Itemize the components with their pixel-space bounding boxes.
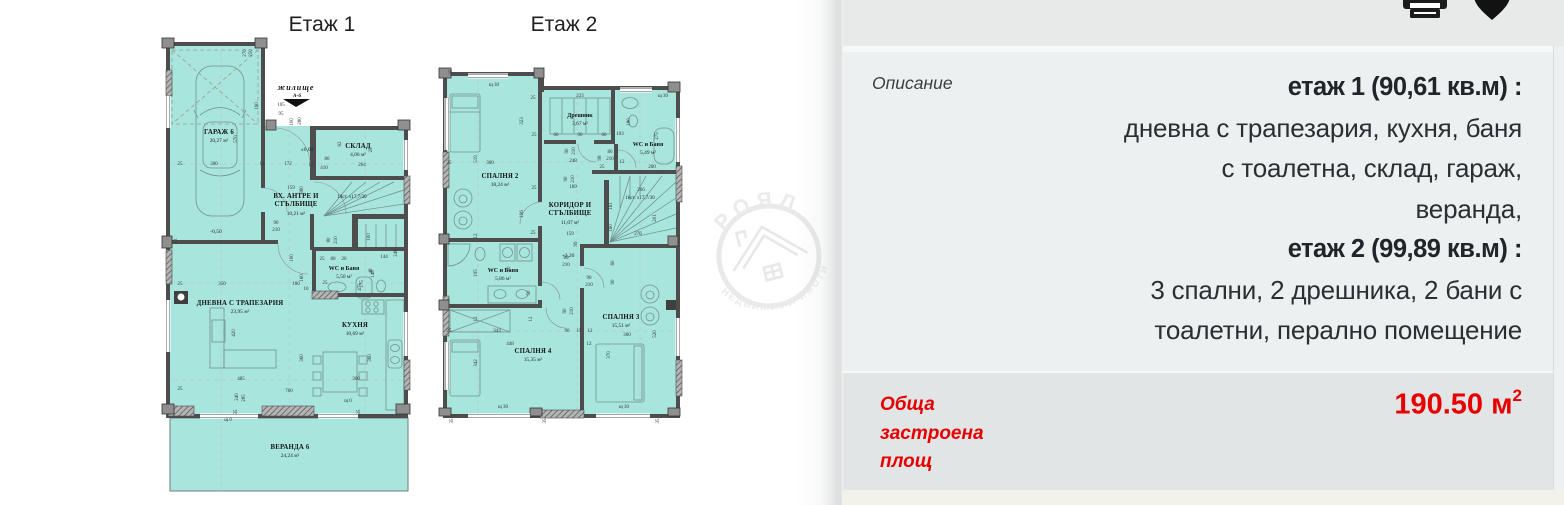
room-label: СПАЛНЯ 2 [481, 173, 518, 180]
note-label: жилище [278, 83, 315, 92]
room-label: СПАЛНЯ 3 [602, 314, 639, 321]
dim-label: 105 [277, 103, 285, 108]
dim-label: 448 [506, 342, 514, 347]
dim-label: 12 [174, 238, 179, 244]
dim-label: 25 [447, 329, 453, 334]
dim-label: 80 [331, 257, 337, 262]
note-label: А-6 [292, 93, 302, 99]
dim-label: 35 [450, 418, 455, 424]
dim-label: 25 [447, 161, 453, 166]
room-label: СПАЛНЯ 4 [514, 348, 551, 355]
dim-label: 323 [520, 117, 525, 125]
dim-label: 380 [300, 186, 305, 194]
dim-label: 240 [235, 393, 240, 401]
dim-label: 519 [474, 155, 479, 163]
dim-label: 210 [334, 236, 339, 244]
dim-label: 10 [304, 287, 310, 292]
room-label: СТЪЛБИЩЕ [274, 201, 317, 208]
dim-label: 12 [309, 163, 315, 168]
dim-label: 25 [178, 387, 184, 392]
dim-label: 410 [320, 166, 328, 171]
room-label: ГАРАЖ 6 [204, 129, 234, 136]
dim-label: 300 [623, 333, 631, 338]
dim-label: 196 [520, 210, 525, 218]
description-line: с тоалетна, склад, гараж, [1124, 148, 1522, 189]
room-area: 15,51 м² [612, 323, 631, 329]
description-line: 3 спални, 2 дрешника, 2 бани с [1124, 270, 1522, 311]
dim-label: 66 [602, 133, 608, 138]
note-label: -0,50 [210, 229, 222, 235]
note-label: щ 30 [658, 94, 669, 99]
room-area: 10,69 м² [346, 331, 365, 337]
dim-label: 144 [380, 255, 388, 260]
dim-label: 248 [394, 249, 399, 257]
floor2-title: Етаж 2 [531, 13, 598, 37]
room-label: Дрешник [567, 113, 593, 119]
total-area-label-line: площ [880, 448, 984, 477]
note-label: 18ст. x17,7/30 [625, 196, 655, 201]
dim-label: 15 [577, 329, 583, 334]
floorplans-area: Етаж 1 Етаж 2 ГАРАЖ 620,27 м²СКЛАД4,06 м… [0, 0, 843, 505]
dim-label: 100 [290, 118, 295, 126]
dim-label: 12 [588, 329, 594, 334]
room-label: ВХ. АНТРЕ И [273, 193, 319, 200]
dim-label: 25 [600, 165, 606, 170]
dim-label: 12 [587, 342, 593, 347]
description-line: дневна с трапезария, кухня, баня [1124, 108, 1522, 149]
room-label: ВЕРАНДА 6 [270, 444, 309, 451]
dim-label: 210 [606, 157, 614, 162]
description-line: тоалетни, перално помещение [1124, 310, 1522, 351]
dim-label: 210 [272, 228, 280, 233]
note-label: щ 0 [344, 399, 352, 404]
listing-info-panel: Описание етаж 1 (90,61 кв.м) :дневна с т… [843, 0, 1564, 505]
dim-label: 35 [656, 418, 661, 424]
dim-label: 35 [543, 418, 548, 424]
room-area: 5,49 м² [640, 150, 656, 156]
dim-label: 25 [320, 257, 326, 262]
dim-label: 275 [655, 132, 660, 140]
description-line: етаж 2 (99,89 кв.м) : [1124, 229, 1522, 270]
dim-label: 25 [323, 281, 329, 286]
dim-label: 285 [242, 394, 247, 402]
dim-label: 475 [358, 283, 363, 291]
dim-label: 360 [368, 354, 373, 362]
room-area: 20,27 м² [210, 138, 229, 144]
dim-label: 12 [474, 316, 479, 322]
dim-label: 35 [449, 69, 454, 75]
dim-label: 210 [570, 307, 575, 315]
next-section-edge [843, 490, 1564, 505]
dim-label: 12 [474, 233, 479, 239]
dim-label: 270 [243, 49, 248, 57]
room-area: 3,67 м² [572, 121, 588, 127]
room-area: 15,35 м² [524, 357, 543, 363]
dim-label: 420 [232, 329, 237, 337]
dim-label: 90 [564, 176, 569, 182]
printer-icon [1403, 0, 1447, 26]
dim-label: 80 [507, 266, 512, 272]
description-label: Описание [872, 73, 953, 94]
dim-label: 360 [300, 354, 305, 362]
dim-label: 103 [616, 132, 624, 137]
note-label: щ 30 [498, 405, 509, 410]
room-label: ДНЕВНА С ТРАПЕЗАРИЯ [197, 300, 284, 307]
dim-label: 159 [287, 186, 295, 191]
total-area-card: Общазастроенаплощ 190.50 м2 [843, 373, 1553, 490]
dim-label: 520 [653, 330, 658, 338]
room-label: WC и Баня [329, 266, 360, 272]
dim-label: 90 [563, 308, 568, 314]
dim-label: 223 [576, 94, 584, 99]
room-area: 24,24 м² [281, 453, 300, 459]
dim-label: 25 [532, 186, 538, 191]
dim-label: 26 [342, 257, 348, 262]
dim-label: 180 [627, 118, 632, 126]
dim-label: 66 [554, 133, 560, 138]
dim-label: 80 [327, 237, 332, 243]
dim-label: 159 [566, 232, 574, 237]
note-label: щ 30 [619, 405, 630, 410]
dim-label: 50 [527, 290, 532, 296]
room-area: 10,21 м² [287, 211, 306, 217]
dim-label: 35 [357, 409, 362, 415]
house-icon [725, 218, 812, 288]
panel-right-margin [1553, 46, 1564, 490]
dim-label: 98 [598, 155, 603, 161]
watermark-top-text: РОЯЛ [706, 178, 809, 237]
dim-label: 90 [611, 279, 616, 285]
dim-label: 195 [474, 269, 479, 277]
description-card: Описание етаж 1 (90,61 кв.м) :дневна с т… [843, 52, 1553, 371]
dim-label: 201 [653, 214, 658, 222]
dim-label: 300 [210, 162, 218, 167]
floor1-title: Етаж 1 [289, 13, 356, 37]
dim-label: 25 [178, 282, 184, 287]
dim-label: 250 [249, 49, 254, 57]
note-label: щ 30 [489, 83, 500, 88]
total-area-label-line: застроена [880, 420, 984, 449]
agency-watermark: РОЯЛ НЕДВИЖИМИ ИМОТИ [693, 156, 843, 356]
dim-label: 148 [371, 270, 376, 278]
note-label: +3,20 [562, 253, 575, 259]
dim-label: 90 [565, 329, 571, 334]
dim-label: 210 [562, 263, 570, 268]
heart-icon [1472, 0, 1512, 24]
dim-label: 12 [529, 316, 534, 322]
dim-label: 25 [531, 231, 537, 236]
print-button[interactable] [1403, 0, 1447, 34]
dim-label: 60 [611, 260, 616, 266]
room-area: 18,24 м² [491, 182, 510, 188]
dim-label: 300 [486, 161, 494, 166]
room-label: КУХНЯ [342, 322, 368, 329]
dim-label: 90 [565, 148, 570, 154]
note-label: щ 0 [224, 418, 232, 423]
room-area: 5,86 м² [495, 276, 511, 282]
dim-label: 12 [620, 160, 626, 165]
room-area: 5,50 м² [336, 274, 352, 280]
dim-label: 266 [637, 188, 645, 193]
note-label: 18ст. x17,7/30 [337, 195, 367, 200]
dim-label: 100 [292, 282, 300, 287]
total-area-value: 190.50 м2 [1394, 388, 1522, 422]
dim-label: 80 [325, 157, 331, 162]
dim-label: 276 [634, 232, 642, 237]
dim-label: 25 [178, 162, 184, 167]
total-area-label-line: Обща [880, 391, 984, 420]
dim-label: 99 [574, 241, 579, 247]
dim-label: 90 [587, 276, 593, 281]
dim-label: 95 [279, 112, 285, 117]
total-area-label: Общазастроенаплощ [880, 391, 984, 477]
dim-label: 160 [300, 274, 305, 282]
dim-label: 80 [608, 150, 614, 155]
dim-label: 12 [260, 162, 266, 167]
dim-label: 264 [358, 163, 366, 168]
dim-label: 485 [237, 377, 245, 382]
room-label: КОРИДОР И [549, 202, 592, 209]
dim-label: 210 [571, 175, 576, 183]
floor2-plan-drawing: СПАЛНЯ 218,24 м²Дрешник3,67 м²WC и Баня5… [434, 58, 686, 430]
dim-label: 200 [648, 165, 656, 170]
dim-label: 570 [234, 135, 239, 143]
dim-label: 172 [284, 162, 292, 167]
dim-label: 161 [609, 202, 614, 210]
dim-label: 90 [578, 133, 584, 138]
dim-label: 343 [493, 329, 501, 334]
dim-label: 160 [609, 224, 614, 232]
dim-label: 280 [298, 117, 303, 125]
dim-label: 190 [255, 102, 260, 110]
dim-label: 35 [234, 409, 239, 415]
dim-label: 25 [532, 133, 538, 138]
room-label: WC и Баня [633, 142, 664, 148]
dim-label: 100 [367, 233, 372, 241]
note-label: ±0,00 [301, 147, 314, 153]
description-text: етаж 1 (90,61 кв.м) :дневна с трапезария… [1124, 67, 1522, 351]
panel-toolbar [843, 0, 1564, 46]
dim-label: 189 [569, 185, 577, 190]
dim-label: 62 [338, 141, 343, 147]
favorite-button[interactable] [1472, 0, 1512, 28]
room-label: WC и Баня [488, 268, 519, 274]
dim-label: 90 [274, 221, 280, 226]
dim-label: 370 [607, 351, 612, 359]
room-area: 11,07 м² [561, 220, 580, 226]
dim-label: 342 [474, 359, 479, 367]
dim-label: 210 [572, 147, 577, 155]
dim-label: 100 [290, 254, 295, 262]
floor1-plan-drawing: ГАРАЖ 620,27 м²СКЛАД4,06 м²ВХ. АНТРЕ ИСТ… [160, 36, 416, 501]
dim-label: 25 [369, 147, 374, 153]
dim-label: 25 [531, 96, 537, 101]
dim-label: 300 [352, 377, 360, 382]
dim-label: 350 [218, 282, 226, 287]
dim-label: 248 [569, 159, 577, 164]
dim-label: 210 [585, 283, 593, 288]
room-area: 4,06 м² [350, 152, 366, 158]
description-line: веранда, [1124, 189, 1522, 230]
description-line: етаж 1 (90,61 кв.м) : [1124, 67, 1522, 108]
room-area: 23,95 м² [231, 309, 250, 315]
dim-label: 760 [285, 389, 293, 394]
room-label: СТЪЛБИЩЕ [548, 210, 591, 217]
room-label: СКЛАД [345, 143, 371, 150]
